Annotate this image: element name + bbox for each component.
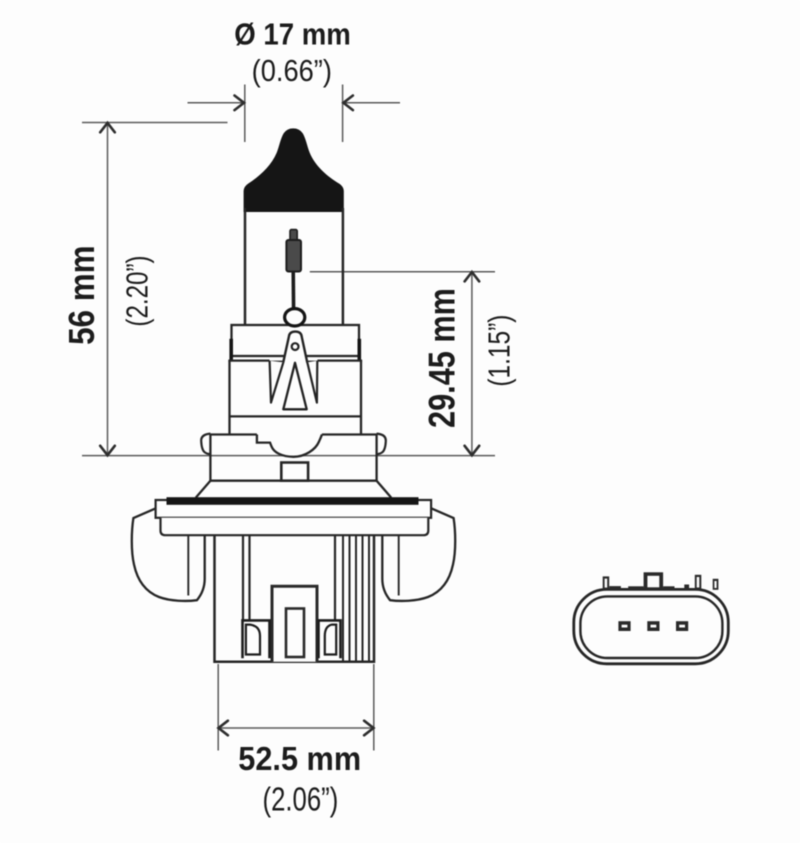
- svg-text:(2.20”): (2.20”): [120, 255, 155, 326]
- svg-text:(0.66”): (0.66”): [252, 54, 332, 88]
- svg-text:56 mm: 56 mm: [62, 245, 103, 344]
- svg-text:(1.15”): (1.15”): [482, 315, 516, 387]
- svg-text:Ø 17 mm: Ø 17 mm: [234, 17, 350, 52]
- svg-text:52.5 mm: 52.5 mm: [238, 740, 361, 777]
- svg-text:(2.06”): (2.06”): [263, 782, 339, 819]
- svg-text:29.45 mm: 29.45 mm: [422, 288, 463, 428]
